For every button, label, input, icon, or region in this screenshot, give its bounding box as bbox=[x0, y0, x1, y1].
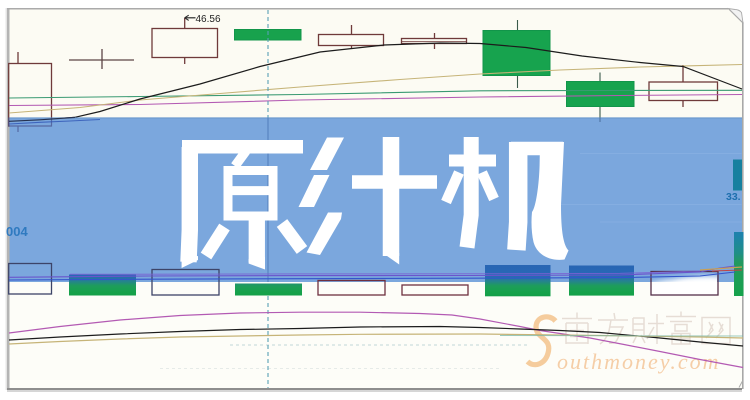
svg-text:33.: 33. bbox=[726, 191, 741, 203]
svg-text:004: 004 bbox=[6, 224, 28, 239]
svg-text:46.56: 46.56 bbox=[196, 14, 221, 25]
svg-text:outhmoney.com: outhmoney.com bbox=[557, 349, 720, 374]
